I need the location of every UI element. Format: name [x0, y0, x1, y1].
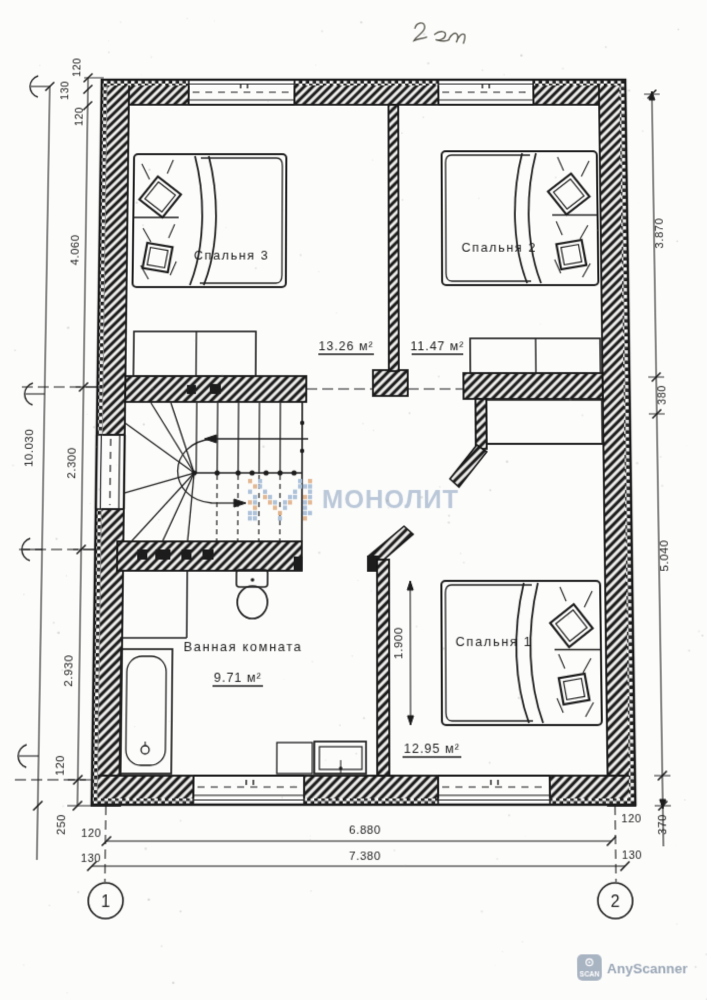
- svg-text:3.870: 3.870: [654, 218, 666, 249]
- svg-text:120: 120: [81, 827, 101, 840]
- svg-text:7.380: 7.380: [349, 850, 381, 863]
- svg-text:МОНОЛИТ: МОНОЛИТ: [322, 486, 459, 514]
- svg-text:4.060: 4.060: [69, 234, 81, 265]
- svg-text:6.880: 6.880: [349, 824, 381, 837]
- svg-text:12.95 м²: 12.95 м²: [404, 741, 460, 756]
- svg-text:370: 370: [657, 814, 670, 835]
- svg-text:Спальня 2: Спальня 2: [461, 241, 537, 255]
- svg-text:1: 1: [101, 893, 111, 911]
- svg-text:120: 120: [71, 58, 83, 77]
- svg-text:130: 130: [81, 852, 101, 865]
- svg-text:AnyScanner: AnyScanner: [607, 961, 688, 977]
- svg-text:Спальня 3: Спальня 3: [194, 249, 270, 263]
- svg-text:120: 120: [621, 813, 641, 826]
- svg-text:11.47 м²: 11.47 м²: [410, 339, 464, 353]
- svg-text:13.26 м²: 13.26 м²: [319, 339, 374, 353]
- svg-text:9.71 м²: 9.71 м²: [214, 670, 262, 684]
- svg-text:10.030: 10.030: [23, 429, 36, 467]
- svg-text:5.040: 5.040: [659, 540, 672, 572]
- svg-text:Спальня 1: Спальня 1: [455, 635, 532, 649]
- svg-text:120: 120: [54, 755, 67, 776]
- svg-text:Ванная комната: Ванная комната: [183, 640, 302, 654]
- svg-text:1.900: 1.900: [393, 627, 405, 659]
- svg-text:120: 120: [74, 107, 86, 126]
- svg-text:2.300: 2.300: [66, 447, 79, 478]
- svg-text:SCAN: SCAN: [580, 971, 600, 978]
- svg-text:380: 380: [656, 385, 668, 405]
- svg-text:130: 130: [59, 81, 71, 100]
- svg-text:130: 130: [622, 849, 642, 862]
- svg-text:2.930: 2.930: [63, 655, 76, 687]
- svg-text:250: 250: [56, 814, 69, 835]
- svg-text:2: 2: [611, 893, 620, 911]
